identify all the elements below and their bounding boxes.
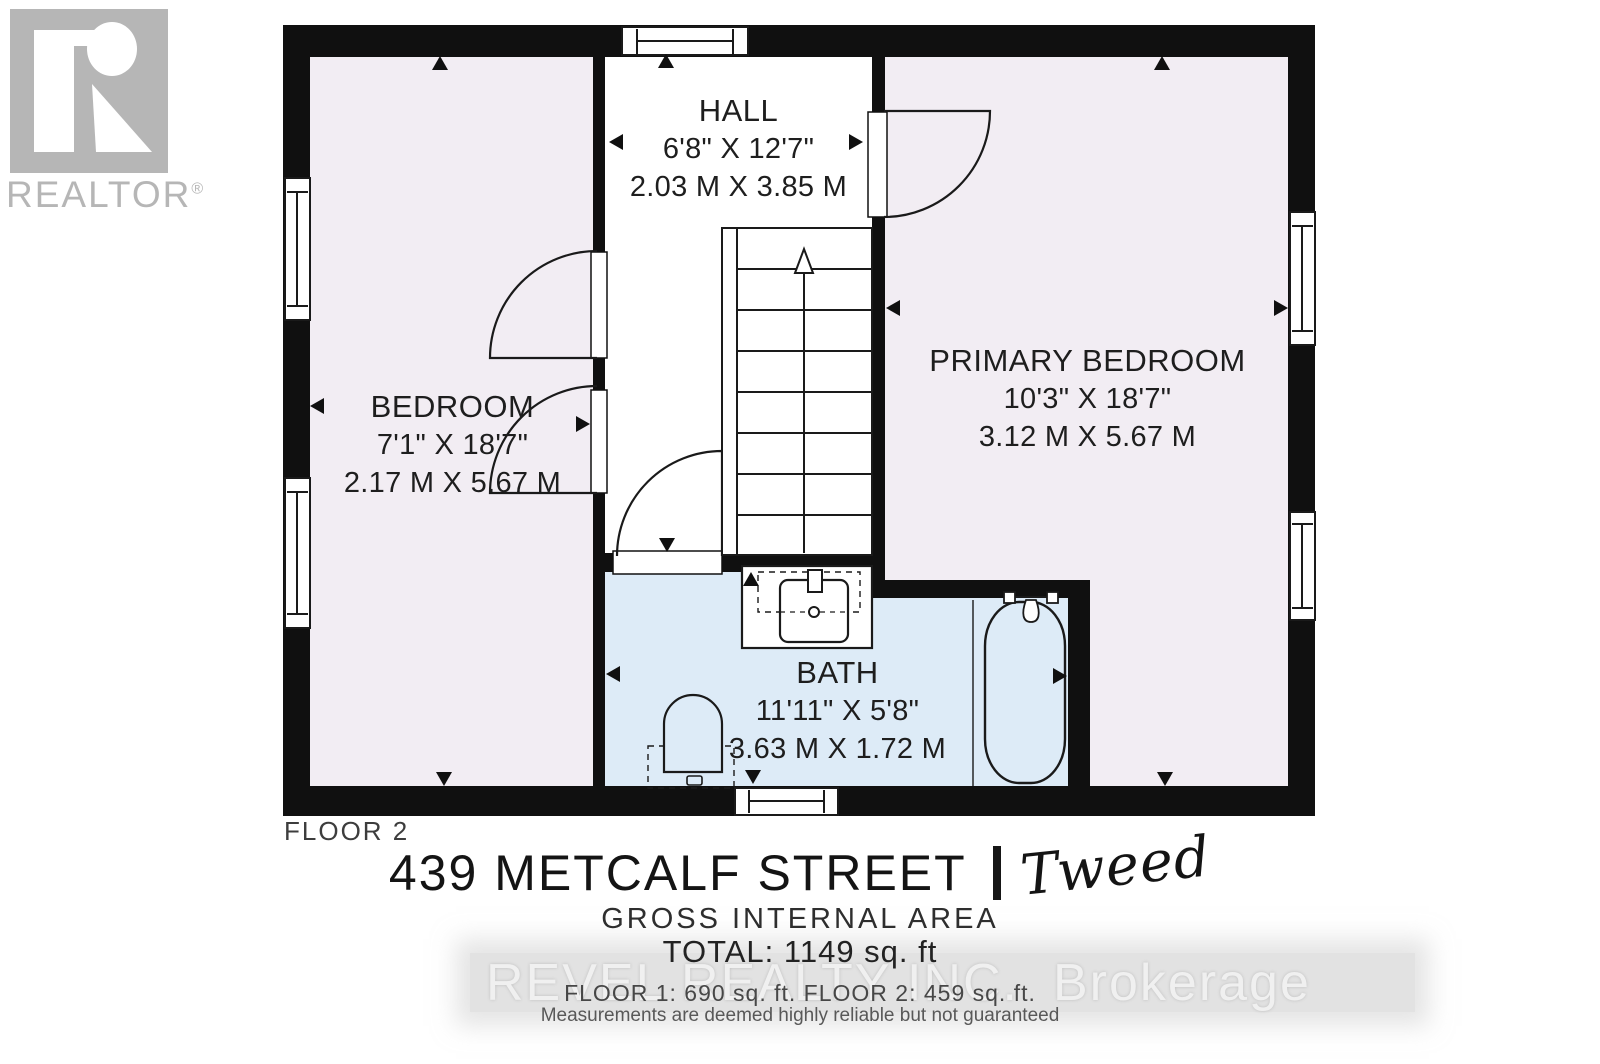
room-name: HALL: [605, 92, 872, 130]
room-label-hall: HALL 6'8" X 12'7" 2.03 M X 3.85 M: [605, 92, 872, 206]
room-dimensions-metric: 2.03 M X 3.85 M: [605, 168, 872, 206]
room-dimensions-metric: 3.12 M X 5.67 M: [887, 418, 1288, 456]
address-separator: [993, 846, 1001, 900]
window-left-upper: [285, 178, 310, 320]
window-bottom: [735, 788, 838, 815]
realtor-logo-icon: [10, 9, 168, 173]
gross-internal-area-label: GROSS INTERNAL AREA: [0, 903, 1600, 936]
room-dimensions-imperial: 6'8" X 12'7": [605, 130, 872, 168]
room-name: BEDROOM: [312, 388, 593, 426]
total-area: TOTAL: 1149 sq. ft: [0, 934, 1600, 970]
sink-vanity-icon: [742, 566, 872, 648]
registered-mark: ®: [191, 181, 203, 198]
measurements-disclaimer: Measurements are deemed highly reliable …: [0, 1005, 1600, 1027]
room-dimensions-imperial: 10'3" X 18'7": [887, 380, 1288, 418]
window-right-upper: [1290, 212, 1315, 345]
room-label-bath: BATH 11'11" X 5'8" 3.63 M X 1.72 M: [607, 654, 1068, 768]
window-top: [622, 27, 748, 55]
stairs: [722, 228, 872, 555]
room-dimensions-metric: 3.63 M X 1.72 M: [607, 730, 1068, 768]
floor-areas: FLOOR 1: 690 sq. ft. FLOOR 2: 459 sq. ft…: [0, 980, 1600, 1007]
floor-plan-page: REALTOR® HALL 6'8" X 12'7" 2.03 M X 3.85…: [0, 0, 1600, 1064]
street-address: 439 METCALF STREET: [389, 844, 967, 902]
window-right-lower: [1290, 512, 1315, 620]
room-name: PRIMARY BEDROOM: [887, 342, 1288, 380]
room-label-primary-bedroom: PRIMARY BEDROOM 10'3" X 18'7" 3.12 M X 5…: [887, 342, 1288, 456]
realtor-logo-text: REALTOR®: [6, 174, 203, 216]
realtor-text: REALTOR: [6, 174, 191, 215]
room-label-bedroom: BEDROOM 7'1" X 18'7" 2.17 M X 5.67 M: [312, 388, 593, 502]
room-dimensions-imperial: 11'11" X 5'8": [607, 692, 1068, 730]
address-row: 439 METCALF STREET Tweed: [0, 840, 1600, 905]
window-left-lower: [285, 478, 310, 628]
room-name: BATH: [607, 654, 1068, 692]
room-dimensions-metric: 2.17 M X 5.67 M: [312, 464, 593, 502]
room-dimensions-imperial: 7'1" X 18'7": [312, 426, 593, 464]
